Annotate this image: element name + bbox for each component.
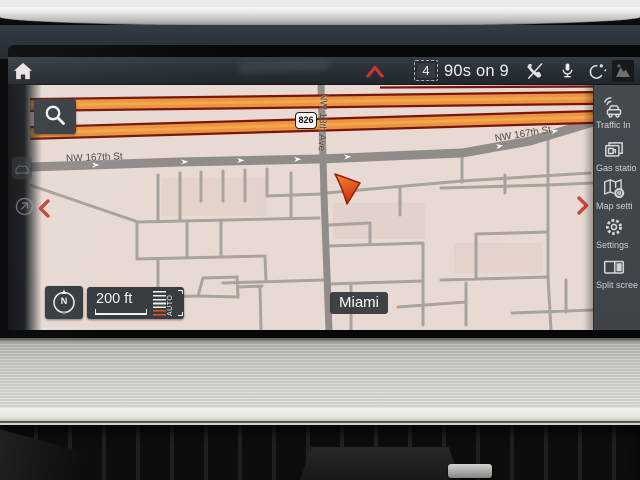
trim-highlight-edge xyxy=(0,408,640,423)
map-scale-control[interactable]: 200 ft AUTO xyxy=(87,287,184,319)
channel-preset-badge[interactable]: 4 xyxy=(414,60,438,81)
status-bar: 4 90s on 9 xyxy=(8,57,640,85)
back-shortcut-button[interactable] xyxy=(15,197,34,216)
city-label: Miami xyxy=(330,292,388,314)
compass-button[interactable]: N xyxy=(45,286,83,319)
sidebar-item-gas-stations[interactable]: Gas statio xyxy=(594,138,640,173)
zoom-bracket-top xyxy=(178,290,183,294)
search-icon xyxy=(34,99,76,134)
chevron-up-icon xyxy=(364,63,386,79)
zoom-tick-marks xyxy=(153,291,166,310)
zoom-tick-marks-active xyxy=(153,310,166,316)
channel-name[interactable]: 90s on 9 xyxy=(444,57,509,85)
sidebar-item-label: Traffic In xyxy=(594,120,640,130)
infotainment-screen: 4 90s on 9 xyxy=(8,45,640,338)
sidebar-item-traffic-info[interactable]: Traffic In xyxy=(594,95,640,130)
screen-body: NW 167th St NW 167th St NW 13th Ave 826 xyxy=(8,85,640,330)
air-vents xyxy=(0,425,640,480)
album-art-thumbnail xyxy=(612,60,634,82)
sidebar-item-label: Map setti xyxy=(594,201,640,211)
sidebar-item-label: Split scree xyxy=(594,280,640,290)
auto-zoom-label: AUTO xyxy=(167,290,177,316)
sidebar-shadow xyxy=(583,85,593,330)
car-icon xyxy=(12,157,32,179)
connected-services-icon xyxy=(586,61,608,81)
circular-arrow-icon xyxy=(15,197,34,216)
sidebar-item-label: Gas statio xyxy=(594,163,640,173)
traffic-info-icon xyxy=(602,95,626,119)
microphone-icon xyxy=(558,60,580,80)
pan-left-chevron[interactable] xyxy=(37,199,51,218)
map-view[interactable]: NW 167th St NW 167th St NW 13th Ave 826 xyxy=(10,85,593,330)
vent-center-divider xyxy=(300,447,460,480)
left-shortcut-tile[interactable] xyxy=(12,157,32,179)
hide-menu-chevron-button[interactable] xyxy=(364,63,386,79)
home-icon xyxy=(12,61,34,81)
gas-station-icon xyxy=(602,138,626,162)
sidebar-item-settings[interactable]: Settings xyxy=(594,215,640,250)
dash-top-trim xyxy=(0,7,640,26)
home-button[interactable] xyxy=(12,61,34,81)
dash-silver-trim xyxy=(0,338,640,425)
window-reflection xyxy=(238,59,330,73)
trim-shadow xyxy=(0,338,640,343)
split-screen-icon xyxy=(602,255,626,279)
options-sidebar: Traffic In Gas statio xyxy=(593,85,640,330)
sidebar-item-split-screen[interactable]: Split scree xyxy=(594,255,640,290)
gear-icon xyxy=(602,215,626,239)
map-settings-icon xyxy=(602,176,626,200)
compass-north-label: N xyxy=(45,296,83,306)
route-826-shield: 826 xyxy=(295,112,317,129)
phone-disconnected-icon xyxy=(524,61,546,81)
map-search-button[interactable] xyxy=(34,99,76,134)
scale-bar xyxy=(95,309,147,315)
zoom-bracket-bottom xyxy=(178,312,183,316)
vent-control-knob xyxy=(448,464,492,478)
sidebar-item-label: Settings xyxy=(594,240,640,250)
sidebar-item-map-settings[interactable]: Map setti xyxy=(594,176,640,211)
scale-value: 200 ft xyxy=(96,291,132,307)
dashboard-photo: 4 90s on 9 xyxy=(0,0,640,480)
vehicle-position-marker xyxy=(335,174,360,204)
